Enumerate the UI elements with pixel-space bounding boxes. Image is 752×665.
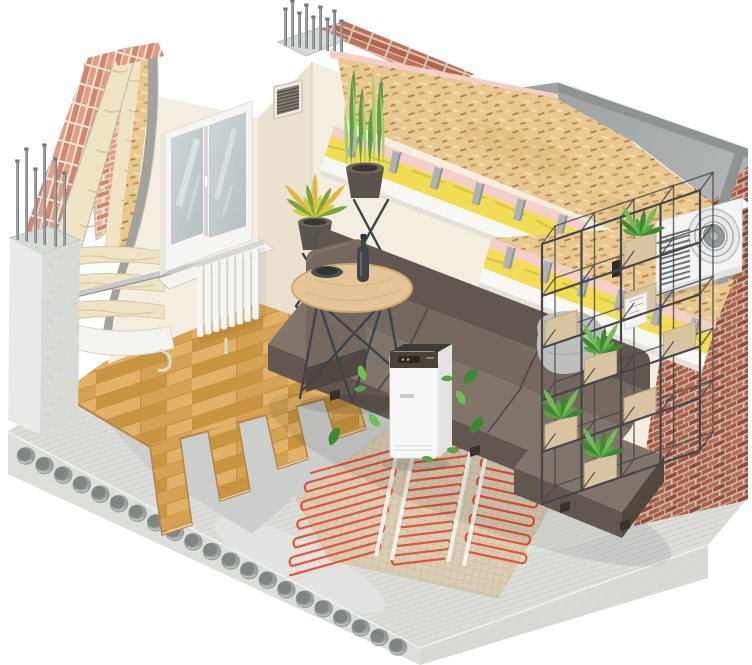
hollow-core-inner: [17, 448, 31, 461]
purifier-logo: [400, 394, 414, 398]
hollow-core-inner: [129, 505, 143, 518]
rebar-cap: [24, 148, 28, 151]
window-pane-right: [209, 112, 246, 238]
rebar-cap: [318, 6, 322, 9]
display-dot: [407, 358, 410, 361]
air-purifier: [382, 344, 452, 471]
wool-bump: [513, 262, 527, 271]
rebar-cap: [332, 10, 336, 13]
hollow-core-inner: [241, 562, 255, 575]
radiator-fin: [237, 251, 244, 325]
rebar-cap: [339, 20, 343, 23]
radiator-fin: [229, 253, 236, 327]
isometric-room-cutaway: [0, 0, 752, 665]
hollow-core-inner: [55, 467, 69, 480]
purifier-side: [438, 344, 452, 458]
wool-bump: [398, 166, 412, 175]
wool-bump: [440, 182, 454, 191]
vent-grille: [274, 80, 302, 119]
radiator-fin: [244, 248, 251, 322]
bottle-cap: [361, 234, 367, 239]
hollow-core-inner: [110, 496, 124, 509]
hollow-core-inner: [185, 534, 199, 547]
rebar-cap: [325, 18, 329, 21]
purifier-shadow: [382, 457, 450, 471]
radiator-fin: [213, 258, 220, 332]
table-top: [292, 264, 412, 312]
wool-bump: [587, 290, 601, 299]
rebar-cap: [53, 158, 57, 161]
radiator-fin: [221, 256, 228, 330]
hollow-core-inner: [278, 582, 292, 595]
hollow-core-inner: [73, 476, 87, 489]
purifier-button: [426, 357, 434, 359]
pillar-left-face: [8, 238, 42, 434]
rebar-cap: [42, 144, 46, 147]
pillar-texture: [40, 240, 80, 434]
radiator-fin: [197, 263, 204, 337]
rebar-cap: [311, 16, 315, 19]
rebar-cap: [304, 4, 308, 7]
shelf-dark-object: [612, 259, 620, 278]
hollow-core-inner: [334, 610, 348, 623]
hollow-core-inner: [315, 601, 329, 614]
window-jamb: [160, 133, 165, 276]
pot-soil: [352, 165, 378, 172]
radiator-fin: [252, 246, 259, 320]
wool-bump: [481, 198, 495, 207]
rebar-cap: [15, 160, 19, 163]
bowl-inner: [316, 267, 338, 275]
radiator-fin: [205, 261, 212, 335]
rebar-cap: [283, 8, 287, 11]
hollow-core-inner: [296, 591, 310, 604]
rebar-cap: [62, 172, 66, 175]
hollow-core-inner: [36, 457, 50, 470]
hollow-core-inner: [222, 553, 236, 566]
bottle-neck: [361, 238, 366, 248]
rebar-cap: [297, 12, 301, 15]
table-shadow: [300, 394, 404, 414]
rebar-cap: [33, 168, 37, 171]
hollow-core-inner: [92, 486, 106, 499]
hollow-core-inner: [259, 572, 273, 585]
hollow-core-inner: [371, 629, 385, 642]
hollow-core-inner: [203, 543, 217, 556]
bottle: [357, 246, 369, 282]
hollow-core-inner: [352, 620, 366, 633]
wool-bump: [523, 214, 537, 223]
rebar-cap: [290, 0, 294, 3]
pot-soil: [303, 219, 327, 225]
scene-canvas: [0, 0, 752, 665]
corner-column: [278, 0, 346, 56]
wool-bump: [661, 318, 675, 327]
display-dot: [402, 358, 405, 361]
hollow-core-inner: [389, 639, 403, 652]
column-rebar: [283, 0, 343, 53]
window-handle: [204, 176, 207, 187]
